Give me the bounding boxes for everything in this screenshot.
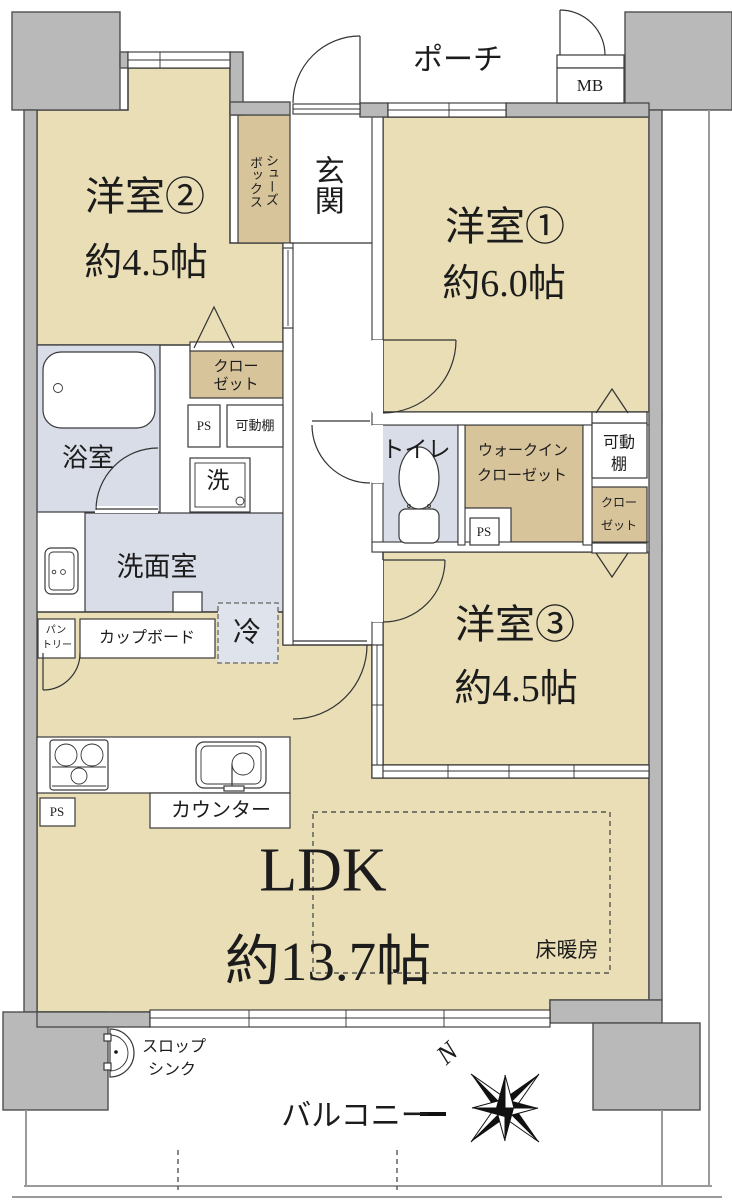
label-western1-size: 約6.0帖 xyxy=(442,265,566,305)
label-closet-east-2: ゼット xyxy=(601,520,637,533)
sliding-door-west2 xyxy=(283,248,293,328)
label-ldk-name: LDK xyxy=(259,838,386,903)
label-ps-west: PS xyxy=(197,419,211,433)
pillar-bottom-right xyxy=(593,1023,700,1110)
label-entrance: 玄関 xyxy=(310,155,342,215)
stove-icon xyxy=(50,740,108,790)
label-meter-box: MB xyxy=(577,77,603,95)
floor-plan: ポーチ MB 玄関 シューズ ボックス 洋室② 約4.5帖 洋室① 約6.0帖 … xyxy=(0,0,732,1200)
label-washer: 洗 xyxy=(207,469,230,493)
label-western3-size: 約4.5帖 xyxy=(454,670,578,710)
shelf-east-track xyxy=(592,412,647,423)
label-slop-sink-2: シンク xyxy=(148,1063,196,1080)
right-wall xyxy=(649,110,662,1000)
label-balcony: バルコニー xyxy=(281,1100,430,1132)
label-ldk-size: 約13.7帖 xyxy=(225,933,431,991)
label-toilet: トイレ xyxy=(382,438,451,462)
label-washroom: 洗面室 xyxy=(117,553,198,581)
entrance-door-sill xyxy=(293,104,360,114)
label-shoe-box-2: ボックス xyxy=(248,156,262,208)
label-closet-east-1: クロー xyxy=(601,497,637,510)
western-room-3-floor xyxy=(383,552,649,765)
label-cupboard: カップボード xyxy=(99,631,195,648)
compass-rose-icon xyxy=(420,1074,539,1142)
label-western2-size: 約4.5帖 xyxy=(84,244,208,284)
kitchen-sink-icon xyxy=(196,742,266,791)
label-floor-heating: 床暖房 xyxy=(536,939,599,961)
label-shelf-east-1: 可動 xyxy=(603,436,635,453)
label-wic-1: ウォークイン xyxy=(478,444,568,460)
window-west1-top xyxy=(388,103,506,117)
sliding-partition-west3-south xyxy=(383,765,649,778)
meter-box-frame xyxy=(557,55,624,68)
left-wall xyxy=(24,110,37,1012)
label-closet-west-2: ゼット xyxy=(213,378,258,394)
label-shoe-box-1: シューズ xyxy=(264,154,278,206)
closet-west-track xyxy=(190,342,283,351)
label-pantry-1: パン xyxy=(46,626,67,637)
label-western1-name: 洋室① xyxy=(445,206,565,248)
label-ps-center: PS xyxy=(477,525,491,539)
label-wic-2: クローゼット xyxy=(477,469,567,485)
meter-box-door-swing xyxy=(560,10,605,55)
pillar-top-right xyxy=(625,12,732,110)
closet-east-track xyxy=(592,543,647,553)
label-counter: カウンター xyxy=(171,801,271,822)
label-closet-west-1: クロー xyxy=(213,360,258,376)
label-western2-name: 洋室② xyxy=(85,176,205,218)
label-ps-kitchen: PS xyxy=(50,805,64,819)
label-shelf-east-2: 棚 xyxy=(611,458,627,475)
label-refrigerator: 冷 xyxy=(233,618,261,647)
label-porch: ポーチ xyxy=(413,44,503,76)
label-bathroom: 浴室 xyxy=(62,444,114,471)
pillar-top-left xyxy=(12,12,120,110)
window-ldk-balcony xyxy=(150,1010,550,1027)
vanity-sink-icon xyxy=(45,548,78,594)
label-shelf-west: 可動棚 xyxy=(235,419,274,433)
window-west2-top xyxy=(128,52,230,68)
label-pantry-2: トリー xyxy=(42,641,72,652)
label-slop-sink-1: スロップ xyxy=(142,1040,206,1057)
bathtub-icon xyxy=(43,352,155,428)
label-western3-name: 洋室③ xyxy=(455,604,575,646)
sliding-partition-west3-west xyxy=(372,645,383,765)
entrance-door-swing xyxy=(293,36,360,103)
toilet-door-swing xyxy=(312,421,370,483)
